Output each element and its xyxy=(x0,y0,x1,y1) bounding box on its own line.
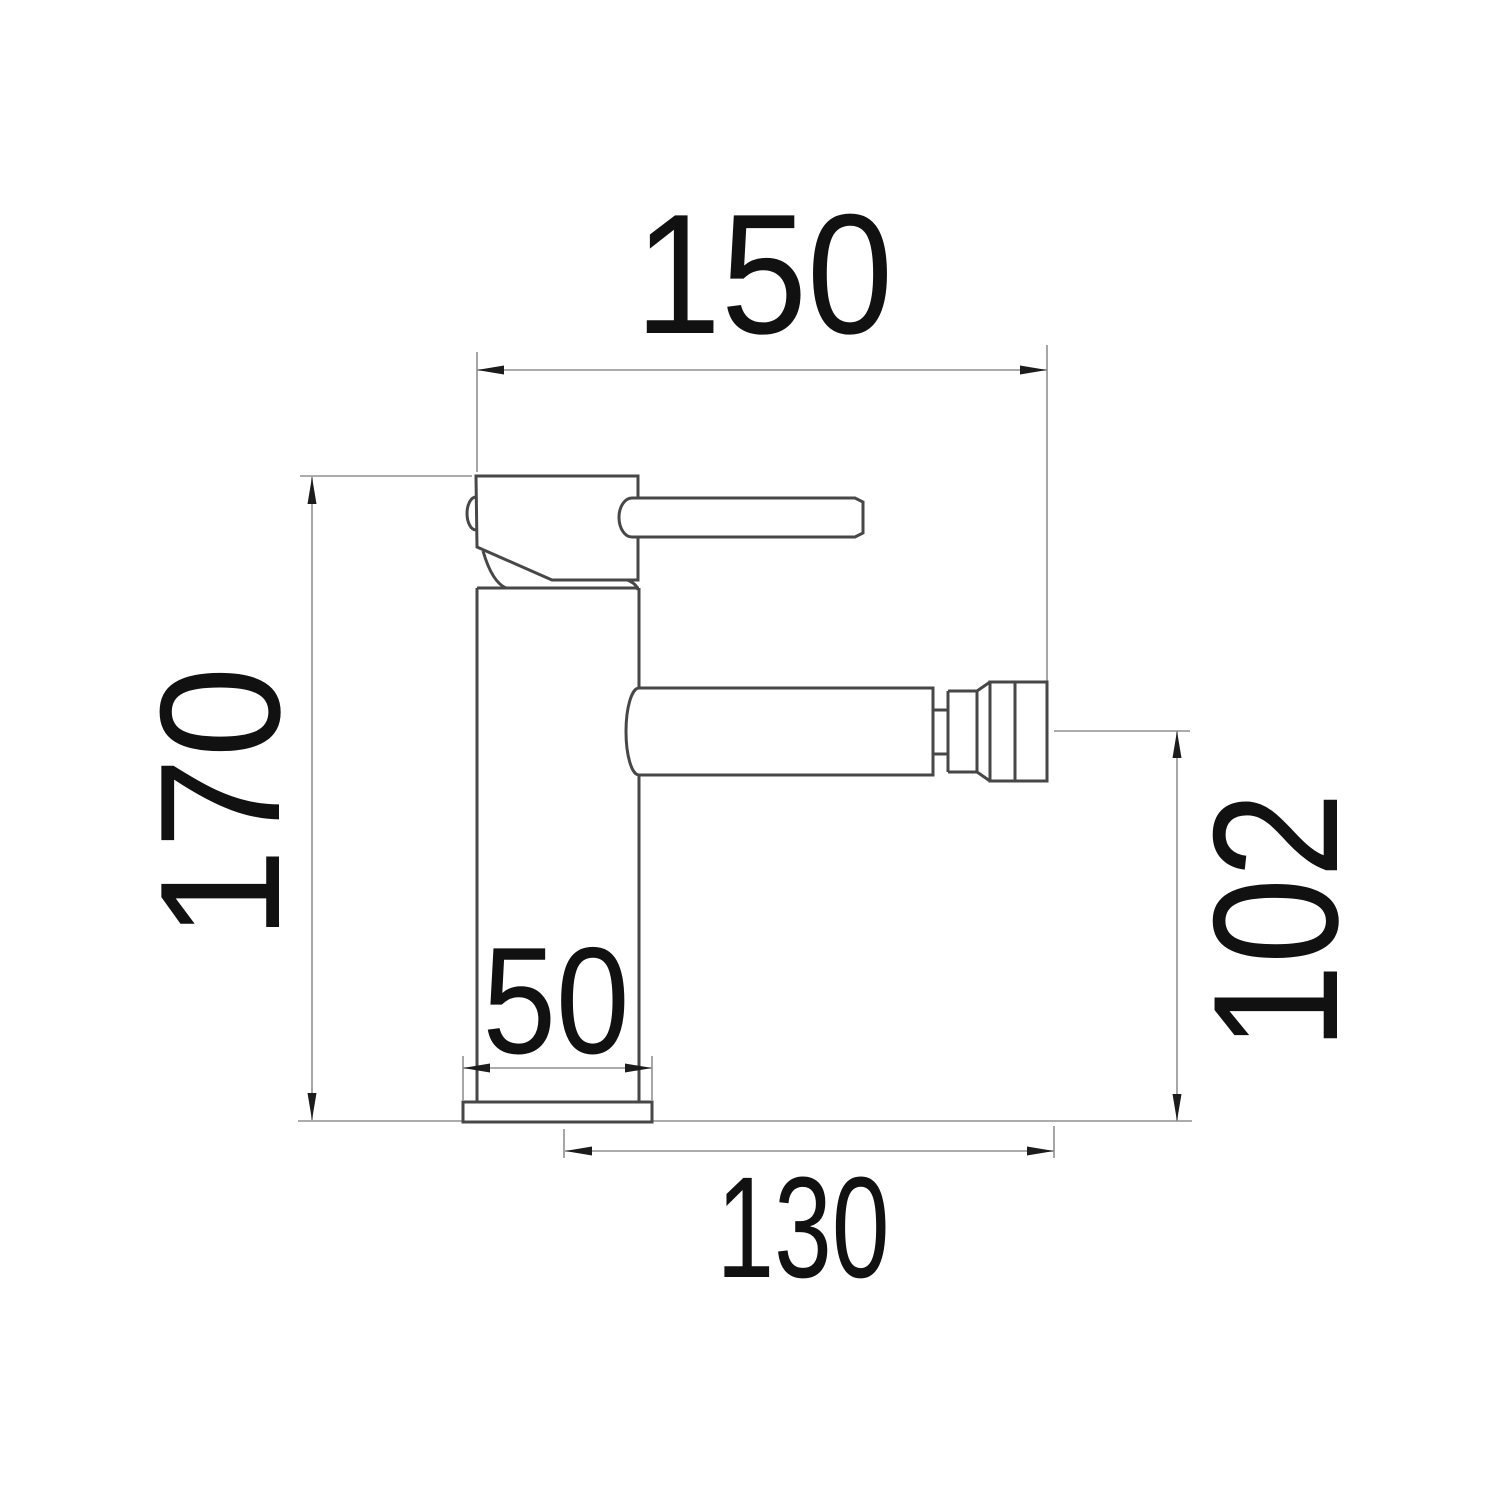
arrowhead-down-icon xyxy=(308,1093,317,1120)
spout xyxy=(626,682,1047,781)
dimension-label-base-width: 50 xyxy=(483,916,630,1086)
dim-spout-center-height: 102 xyxy=(1173,731,1376,1121)
dim-spout-reach: 130 xyxy=(565,1147,1054,1309)
dimension-label-spout-reach: 130 xyxy=(717,1147,890,1308)
arrowhead-right-icon xyxy=(1020,366,1047,375)
control-handle-lever xyxy=(619,498,863,537)
mixer-cartridge-cap xyxy=(467,476,638,590)
spout-aerator-tip xyxy=(933,682,1047,781)
faucet-dimension-drawing: 150 170 102 50 130 xyxy=(0,0,1500,1500)
dim-base-width: 50 xyxy=(463,916,652,1086)
dimension-label-spout-center-height: 102 xyxy=(1176,792,1375,1050)
base-plate xyxy=(463,1102,652,1122)
dim-overall-height: 170 xyxy=(125,477,317,1120)
cap-side-button xyxy=(467,497,476,530)
arrowhead-left-icon xyxy=(477,366,504,375)
technical-drawing-canvas: 150 170 102 50 130 xyxy=(0,0,1500,1500)
arrowhead-up-icon xyxy=(308,477,317,504)
arrowhead-right-icon xyxy=(1027,1147,1054,1156)
dim-overall-width: 150 xyxy=(477,179,1047,375)
dimension-label-overall-width: 150 xyxy=(635,179,893,370)
arrowhead-down-icon xyxy=(1173,1094,1182,1121)
arrowhead-left-icon xyxy=(565,1147,592,1156)
arrowhead-up-icon xyxy=(1173,731,1182,758)
dimension-label-overall-height: 170 xyxy=(125,667,316,940)
